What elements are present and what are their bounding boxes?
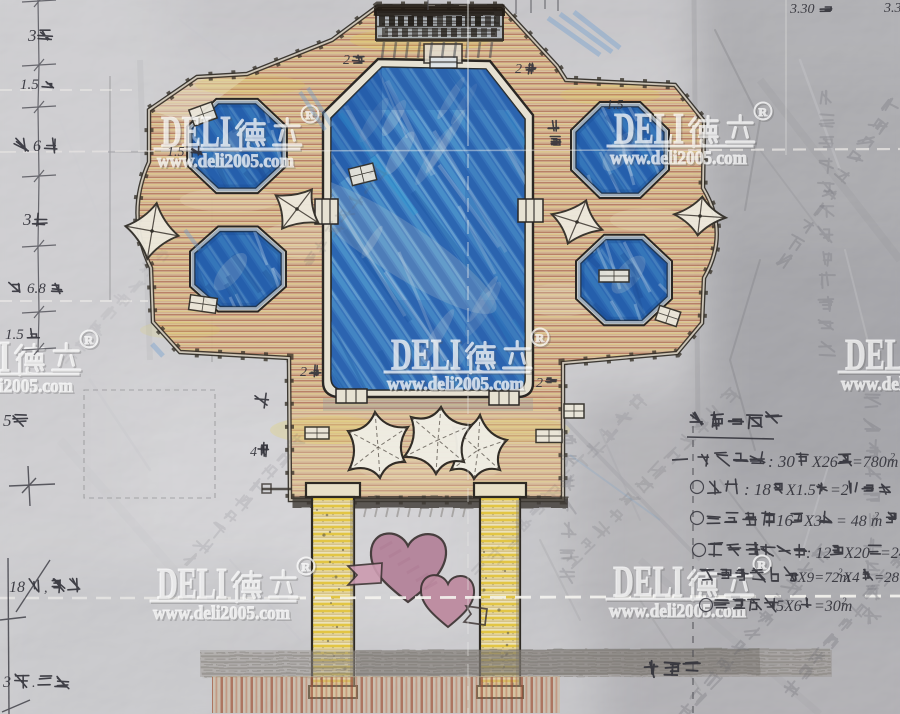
svg-text:6: 6: [33, 138, 41, 155]
svg-text:5: 5: [3, 411, 12, 430]
svg-text:=240: =240: [880, 545, 900, 562]
svg-text:3.30: 3.30: [789, 2, 815, 17]
svg-text:: 12: : 12: [806, 545, 831, 562]
svg-text:1.5: 1.5: [20, 77, 39, 93]
svg-text:2: 2: [343, 53, 350, 68]
svg-text:: 30: : 30: [768, 452, 795, 471]
svg-text:X4: X4: [842, 570, 860, 586]
svg-text:X3: X3: [803, 513, 822, 530]
svg-text:18: 18: [9, 579, 25, 596]
svg-text:1.5: 1.5: [167, 145, 185, 160]
svg-text:=30m: =30m: [814, 598, 852, 615]
svg-text:2: 2: [842, 596, 847, 606]
svg-text:2: 2: [890, 452, 895, 463]
svg-text:2: 2: [874, 511, 879, 522]
svg-text:3: 3: [2, 674, 11, 691]
svg-text:2: 2: [536, 376, 543, 391]
svg-text:3: 3: [27, 26, 37, 45]
svg-text:,: ,: [44, 581, 48, 596]
svg-text:X26: X26: [811, 454, 838, 471]
svg-text:.: .: [32, 676, 36, 691]
svg-text:2: 2: [515, 62, 522, 77]
svg-text:=2: =2: [830, 482, 849, 499]
svg-text:4: 4: [250, 445, 257, 460]
svg-text:6.8: 6.8: [27, 281, 46, 297]
svg-text:: 18: : 18: [744, 480, 771, 499]
svg-text:X20: X20: [843, 545, 870, 562]
svg-text:X1.5: X1.5: [785, 482, 816, 499]
svg-text:3: 3: [22, 210, 32, 229]
svg-text:1.5: 1.5: [606, 98, 624, 113]
svg-text:5X6: 5X6: [776, 598, 802, 615]
svg-text:=28: =28: [874, 570, 900, 586]
svg-text:1.5: 1.5: [5, 327, 24, 343]
svg-text:3.3: 3.3: [883, 1, 900, 16]
svg-text:2: 2: [300, 365, 307, 380]
